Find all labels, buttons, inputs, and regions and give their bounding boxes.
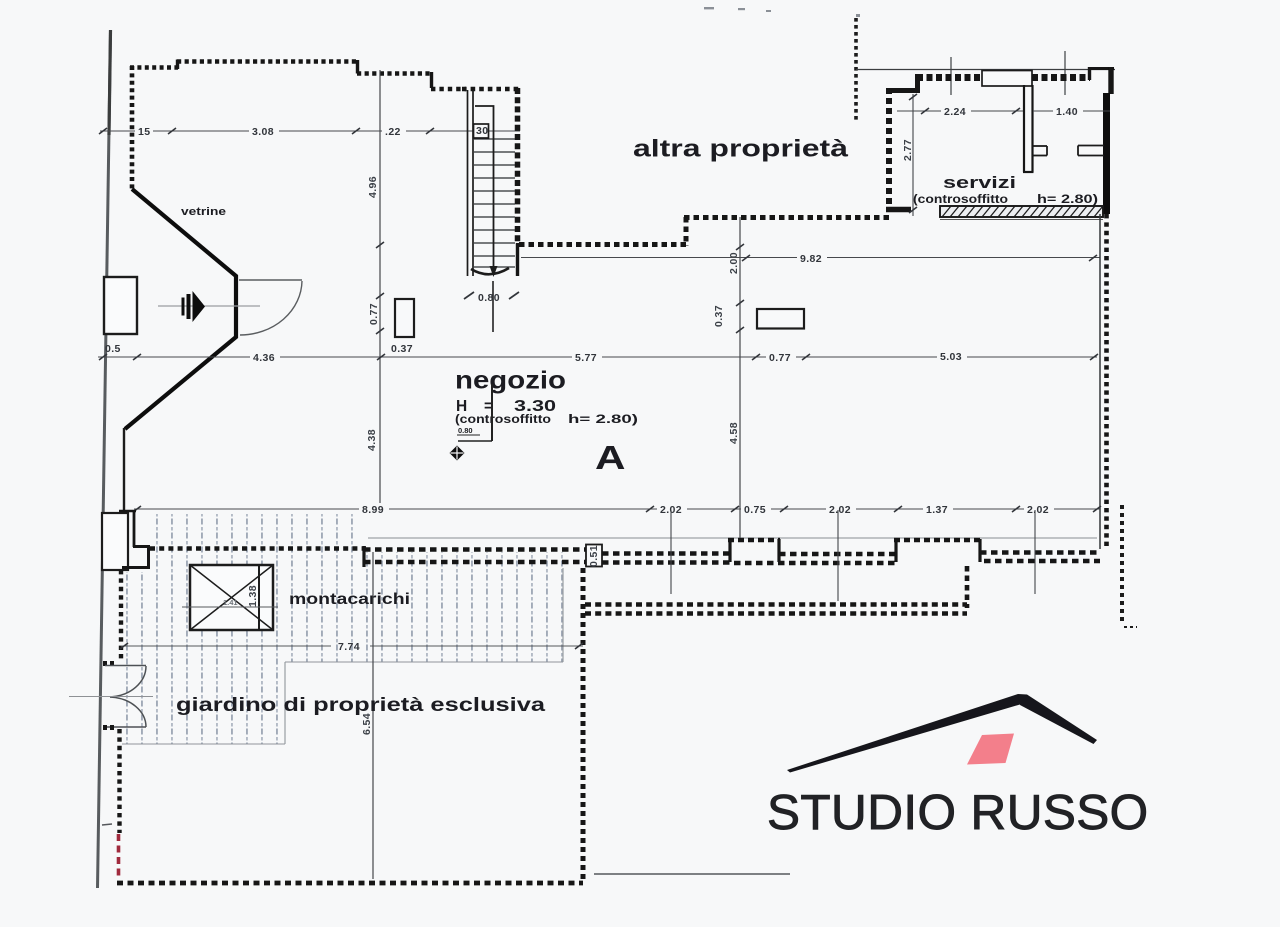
svg-text:vetrine: vetrine (181, 206, 226, 218)
svg-text:2.77: 2.77 (902, 139, 914, 161)
svg-text:giardino di proprietà esclusiv: giardino di proprietà esclusiva (176, 694, 545, 716)
svg-text:2.02: 2.02 (1027, 504, 1049, 516)
svg-text:2.24: 2.24 (944, 106, 966, 118)
svg-text:0.75: 0.75 (744, 504, 766, 516)
svg-text:0.37: 0.37 (713, 305, 725, 327)
svg-text:2.02: 2.02 (829, 504, 851, 516)
svg-text:montacarichi: montacarichi (289, 591, 410, 608)
svg-text:negozio: negozio (455, 367, 566, 395)
svg-text:1.37: 1.37 (926, 504, 948, 516)
svg-text:h= 2.80): h= 2.80) (568, 412, 638, 426)
svg-text:0.77: 0.77 (368, 303, 380, 325)
svg-text:servizi: servizi (943, 173, 1016, 192)
svg-text:9.82: 9.82 (800, 253, 822, 265)
svg-text:1.38: 1.38 (247, 585, 259, 607)
svg-text:7.74: 7.74 (338, 641, 360, 653)
svg-text:(controsoffitto: (controsoffitto (913, 192, 1008, 206)
svg-text:6.54: 6.54 (361, 713, 373, 735)
svg-text:altra proprietà: altra proprietà (633, 136, 848, 163)
svg-text:0.80: 0.80 (478, 292, 500, 304)
svg-text:3.08: 3.08 (252, 126, 274, 138)
svg-text:0.51: 0.51 (588, 545, 600, 567)
svg-text:0.80: 0.80 (458, 426, 473, 435)
svg-text:.22: .22 (385, 126, 401, 138)
svg-text:0.5: 0.5 (105, 343, 121, 355)
svg-text:5.77: 5.77 (575, 352, 597, 364)
svg-text:(controsoffitto: (controsoffitto (455, 412, 551, 426)
svg-text:30: 30 (476, 125, 488, 137)
svg-text:A: A (595, 440, 626, 477)
svg-text:2.00: 2.00 (728, 252, 740, 274)
svg-text:h= 2.80): h= 2.80) (1037, 192, 1098, 206)
svg-text:5.03: 5.03 (940, 351, 962, 363)
svg-text:4.58: 4.58 (728, 422, 740, 444)
svg-text:4.36: 4.36 (253, 352, 275, 364)
svg-text:STUDIO RUSSO: STUDIO RUSSO (767, 785, 1149, 840)
svg-text:4.38: 4.38 (366, 429, 378, 451)
svg-text:0.37: 0.37 (391, 343, 413, 355)
svg-text:1.41: 1.41 (223, 598, 238, 607)
svg-text:8.99: 8.99 (362, 504, 384, 516)
svg-text:0.77: 0.77 (769, 352, 791, 364)
svg-text:1.40: 1.40 (1056, 106, 1078, 118)
svg-text:4.96: 4.96 (367, 176, 379, 198)
svg-text:15: 15 (138, 126, 150, 138)
